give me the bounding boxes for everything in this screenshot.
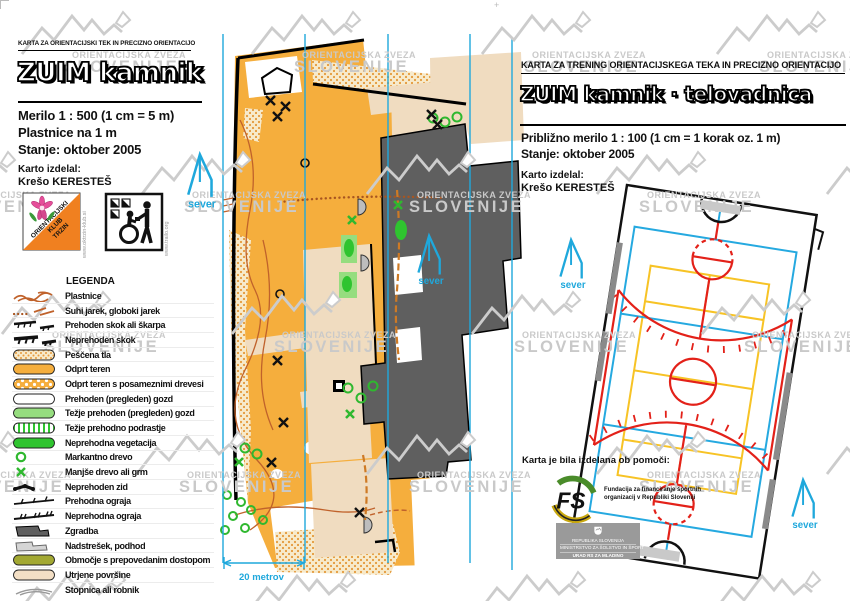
legend-item: Peščena tla <box>12 347 214 362</box>
legend-item: Markantno drevo <box>12 450 214 465</box>
building-icon <box>12 525 58 537</box>
legend-item-label: Manjše drevo ali grm <box>65 467 148 477</box>
author-label: Karto izdelal: <box>18 164 81 175</box>
legend-item-label: Odprt teren <box>65 364 110 374</box>
svg-text:sever: sever <box>418 276 443 287</box>
mountain-watermark-icon <box>715 8 833 58</box>
map-status: Stanje: oktober 2005 <box>18 142 141 157</box>
fs-foundation-logo: FS <box>548 473 600 525</box>
veg-impass-icon <box>12 437 58 449</box>
ok-trzin-logo: ORIENTACIJSKI KLUB TRZIN <box>22 192 82 252</box>
legend-title: LEGENDA <box>66 276 115 287</box>
legend-item-label: Odprt teren s posameznimi drevesi <box>65 379 204 389</box>
legend-item: Prehoden (pregleden) gozd <box>12 391 214 406</box>
legend-item-label: Peščena tla <box>65 350 111 360</box>
zuim-kamnik-logo: ZUIM kamnik <box>17 58 203 88</box>
legend-item-label: Plastnice <box>65 291 101 301</box>
svg-text:sever: sever <box>188 198 216 210</box>
trailo-wheelchair-logo <box>104 192 164 252</box>
sandy-icon <box>12 349 58 361</box>
ditch-icon <box>12 305 58 317</box>
sever-north-icon: sever <box>184 150 220 214</box>
svg-text:sever: sever <box>792 520 817 531</box>
step-icon <box>12 584 58 596</box>
legend-item-label: Območje s prepovedanim dostopom <box>65 555 210 565</box>
contour-interval: Plastnice na 1 m <box>18 125 117 140</box>
legend-item: Neprehoden zid <box>12 479 214 494</box>
legend-item-label: Prehoden skok ali škarpa <box>65 320 165 330</box>
cliff-impass-icon <box>12 334 58 346</box>
contours-icon <box>12 290 58 302</box>
gym-map-status: Stanje: oktober 2005 <box>521 147 634 161</box>
sever-north-icon: sever <box>556 236 590 294</box>
paved-icon <box>12 569 58 581</box>
right-kicker: KARTA ZA TRENING ORIENTACIJSKEGA TEKA IN… <box>521 60 845 74</box>
fence-pass-icon <box>12 495 58 507</box>
legend-item: Območje s prepovedanim dostopom <box>12 552 214 567</box>
legend-item: Zgradba <box>12 523 214 538</box>
corner-crop-mark <box>0 0 9 9</box>
legend-item: Težje prehodno podrastje <box>12 420 214 435</box>
undergrowth-icon <box>12 422 58 434</box>
canopy-icon <box>12 540 58 552</box>
divider <box>18 101 202 103</box>
legend-item-label: Suhi jarek, globoki jarek <box>65 306 160 316</box>
legend-item-label: Nadstrešek, podhod <box>65 541 145 551</box>
legend-item-label: Stopnica ali robnik <box>65 585 139 595</box>
legend-item: Prehodna ograja <box>12 494 214 509</box>
legend-item: Suhi jarek, globoki jarek <box>12 303 214 318</box>
fs-foundation-text: Fundacija za financiranje športnih organ… <box>604 486 701 502</box>
forest-open-icon <box>12 393 58 405</box>
open-scattered-icon <box>12 378 58 390</box>
legend-item: Težje prehoden (pregleden) gozd <box>12 406 214 421</box>
legend-item: Neprehodna ograja <box>12 508 214 523</box>
legend-item-label: Neprehoden zid <box>65 482 128 492</box>
map-sheet: + KARTA ZA ORIENTACIJSKI TEK IN PRECIZNO… <box>0 0 850 601</box>
legend-item: Odprt teren <box>12 361 214 376</box>
credits-title: Karta je bila izdelana ob pomoči: <box>522 455 670 466</box>
sever-north-icon: sever <box>414 232 448 290</box>
forest-dense-icon <box>12 407 58 419</box>
legend-item: Odprt teren s posameznimi drevesi <box>12 376 214 391</box>
legend-item-label: Neprehodna vegetacija <box>65 438 156 448</box>
cliff-pass-icon <box>12 319 58 331</box>
legend-item-label: Utrjene površine <box>65 570 130 580</box>
gym-map-scale: Približno merilo 1 : 100 (1 cm = 1 korak… <box>521 131 780 145</box>
legend-item: Nadstrešek, podhod <box>12 538 214 553</box>
club-url: www.oktrzin-klub.si <box>82 211 88 258</box>
legend: PlastniceSuhi jarek, globoki jarekPrehod… <box>12 289 214 596</box>
map-scale: Merilo 1 : 500 (1 cm = 5 m) <box>18 108 174 123</box>
divider <box>520 124 846 126</box>
legend-item-label: Zgradba <box>65 526 98 536</box>
open-icon <box>12 363 58 375</box>
author-name: Krešo KERESTEŠ <box>18 176 112 188</box>
ministry-logo: REPUBLIKA SLOVENIJA MINISTRSTVO ZA ŠOLST… <box>556 523 640 559</box>
legend-item: Neprehoden skok <box>12 332 214 347</box>
main-orienteering-map: 20 metrov <box>215 30 525 588</box>
legend-item-label: Težje prehoden (pregleden) gozd <box>65 408 195 418</box>
forbidden-icon <box>12 554 58 566</box>
legend-item-label: Težje prehodno podrastje <box>65 423 165 433</box>
svg-text:sever: sever <box>560 280 585 291</box>
registration-cross-icon: + <box>494 0 499 10</box>
left-kicker: KARTA ZA ORIENTACIJSKI TEK IN PRECIZNO O… <box>18 40 191 51</box>
legend-item-label: Prehodna ograja <box>65 496 131 506</box>
small-tree-icon <box>12 466 58 478</box>
legend-item-label: Markantno drevo <box>65 452 132 462</box>
big-tree-icon <box>12 451 58 463</box>
trailo-url: www.trailo.org <box>164 221 170 256</box>
slovenia-coat-of-arms-icon <box>592 526 604 536</box>
scale-bar-label: 20 metrov <box>239 572 285 583</box>
legend-item: Utrjene površine <box>12 567 214 582</box>
zuim-kamnik-telovadnica-logo: ZUIM kamnik · telovadnica <box>520 82 812 106</box>
legend-item-label: Neprehoden skok <box>65 335 135 345</box>
legend-item: Plastnice <box>12 289 214 303</box>
legend-item: Manjše drevo ali grm <box>12 464 214 479</box>
author-label: Karto izdelal: <box>521 170 584 181</box>
legend-item: Prehoden skok ali škarpa <box>12 317 214 332</box>
svg-text:FS: FS <box>556 487 586 513</box>
author-name: Krešo KERESTEŠ <box>521 182 615 194</box>
legend-item-label: Neprehodna ograja <box>65 511 141 521</box>
sever-north-icon: sever <box>788 476 822 534</box>
wall-impass-icon <box>12 481 58 493</box>
legend-item: Stopnica ali robnik <box>12 582 214 597</box>
fence-impass-icon <box>12 510 58 522</box>
legend-item: Neprehodna vegetacija <box>12 435 214 450</box>
legend-item-label: Prehoden (pregleden) gozd <box>65 394 173 404</box>
